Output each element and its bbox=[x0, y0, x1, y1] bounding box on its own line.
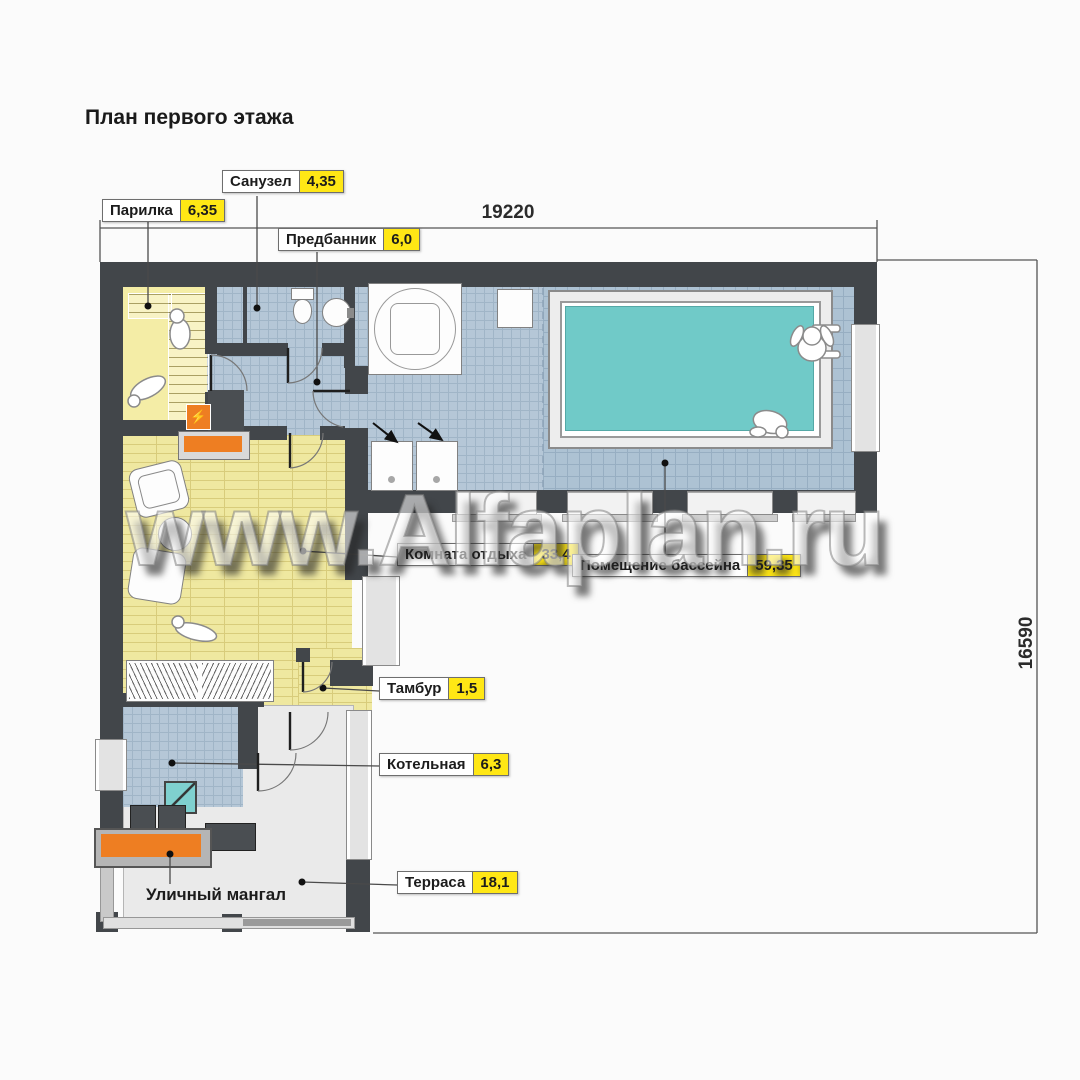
dimension-top: 19220 bbox=[468, 202, 548, 224]
room-name-bassein: Помещение бассейна bbox=[572, 554, 748, 577]
floor-plan-page: { "title": "План первого этажа", "waterm… bbox=[0, 0, 1080, 1080]
person-steam-2 bbox=[127, 371, 169, 407]
person-steam-1 bbox=[170, 309, 190, 349]
dimension-right: 16590 bbox=[1016, 608, 1038, 678]
label-mangal: Уличный мангал bbox=[146, 885, 286, 905]
label-komnata: Комната отдыха 33,4 bbox=[397, 543, 579, 566]
room-name-sanuzel: Санузел bbox=[222, 170, 300, 193]
room-area-terrasa: 18,1 bbox=[473, 871, 517, 894]
room-area-bassein: 59,35 bbox=[748, 554, 801, 577]
label-terrasa: Терраса 18,1 bbox=[397, 871, 518, 894]
room-name-kotelnaya: Котельная bbox=[379, 753, 474, 776]
room-area-kotelnaya: 6,3 bbox=[474, 753, 510, 776]
person-rest-room bbox=[172, 616, 218, 645]
dimension-lines bbox=[100, 220, 1037, 933]
leader-lines bbox=[148, 196, 665, 885]
label-bassein: Помещение бассейна 59,35 bbox=[572, 554, 801, 577]
page-title: План первого этажа bbox=[85, 106, 294, 130]
plan-linework bbox=[0, 0, 1080, 1080]
door-swings bbox=[211, 348, 350, 791]
label-tambur: Тамбур 1,5 bbox=[379, 677, 485, 700]
room-area-parilka: 6,35 bbox=[181, 199, 225, 222]
label-parilka: Парилка 6,35 bbox=[102, 199, 225, 222]
room-area-tambur: 1,5 bbox=[449, 677, 485, 700]
person-pool-edge bbox=[750, 407, 789, 438]
room-name-predbannik: Предбанник bbox=[278, 228, 384, 251]
leader-dots bbox=[145, 303, 669, 886]
label-sanuzel: Санузел 4,35 bbox=[222, 170, 344, 193]
room-name-tambur: Тамбур bbox=[379, 677, 449, 700]
person-figures bbox=[127, 309, 836, 645]
room-name-komnata: Комната отдыха bbox=[397, 543, 534, 566]
label-predbannik: Предбанник 6,0 bbox=[278, 228, 420, 251]
room-name-parilka: Парилка bbox=[102, 199, 181, 222]
room-area-sanuzel: 4,35 bbox=[300, 170, 344, 193]
room-name-terrasa: Терраса bbox=[397, 871, 473, 894]
label-kotelnaya: Котельная 6,3 bbox=[379, 753, 509, 776]
room-area-predbannik: 6,0 bbox=[384, 228, 420, 251]
shower-arrows bbox=[373, 423, 442, 442]
